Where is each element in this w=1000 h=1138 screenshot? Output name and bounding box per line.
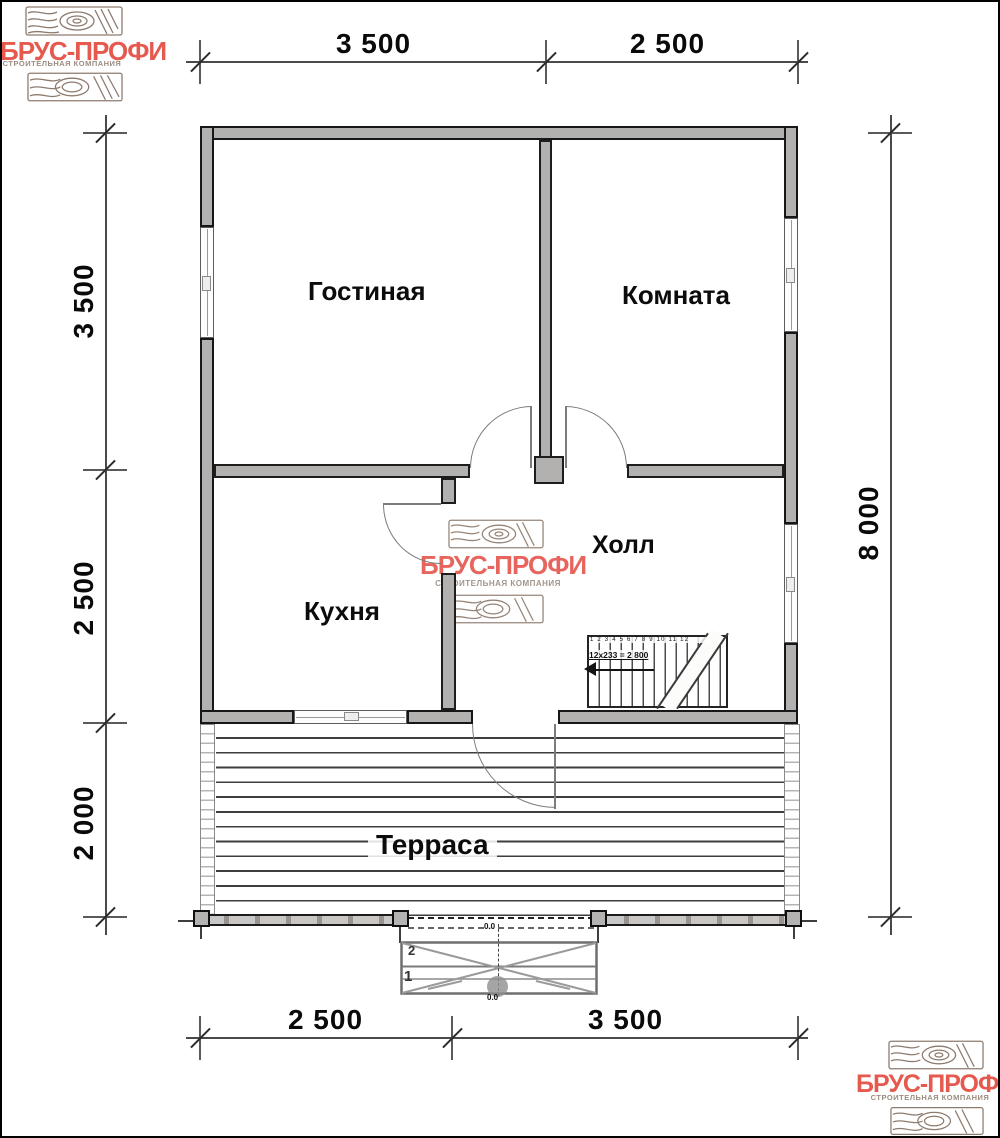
floor-plan-sheet: БРУС-ПРОФИ СТРОИТЕЛЬНАЯ КОМПАНИЯ БРУС-ПР…: [0, 0, 1000, 1138]
wood-plank-icon: [888, 1040, 984, 1070]
dim-left-2500: 2 500: [68, 510, 100, 686]
dim-bottom-3500: 3 500: [538, 1004, 713, 1036]
dim-left-3500: 3 500: [68, 213, 100, 389]
door-leaf-living-room: [530, 406, 532, 468]
terrace-opening-dashed-line: [408, 917, 594, 919]
staircase-step-numbers: 1 2 3 4 5 6 7 8 9 10 11 12: [590, 637, 710, 643]
terrace-left-edge: [200, 724, 215, 916]
dim-left-2000: 2 000: [68, 735, 100, 911]
room-label-kitchen: Кухня: [304, 596, 380, 627]
terrace-right-edge: [784, 724, 800, 916]
terrace-post: [590, 910, 607, 927]
window-living-room: [200, 227, 214, 338]
room-label-hall: Холл: [592, 531, 655, 560]
railing-tick: [200, 927, 202, 939]
wall-exterior-left-lower: [200, 338, 214, 724]
dimension-line-left: [105, 115, 107, 935]
room-label-bedroom: Комната: [622, 280, 730, 311]
wood-plank-icon: [27, 72, 123, 102]
wood-plank-icon: [448, 593, 544, 625]
wall-interior-kitchen: [441, 573, 456, 710]
wood-plank-icon: [25, 6, 123, 36]
window-bedroom: [784, 218, 798, 332]
staircase-direction-line: [596, 669, 654, 671]
wall-exterior-top: [200, 126, 798, 140]
dim-bottom-2500: 2 500: [238, 1004, 413, 1036]
wall-exterior-right-upper: [784, 126, 798, 218]
dim-right-8000: 8 000: [853, 435, 885, 611]
brand-tagline-footer: СТРОИТЕЛЬНАЯ КОМПАНИЯ: [866, 1093, 994, 1102]
room-label-living: Гостиная: [308, 276, 426, 307]
door-leaf-terrace: [554, 724, 556, 809]
wall-interior-living-bedroom: [539, 140, 552, 458]
dim-top-3500: 3 500: [286, 28, 461, 60]
window-hall: [784, 524, 798, 643]
wall-exterior-bottom-a: [200, 710, 294, 724]
terrace-railing-left: [196, 914, 404, 926]
railing-tick: [793, 927, 795, 939]
wall-interior-center-stub: [534, 456, 564, 484]
railing-tick: [178, 920, 193, 922]
entrance-level-bottom: 0.0: [487, 993, 498, 1002]
wall-interior-horizontal-left: [214, 464, 470, 478]
wall-interior-kitchen-stub: [441, 478, 456, 504]
wood-plank-icon: [890, 1106, 984, 1136]
door-arc-living-room: [470, 406, 532, 468]
terrace-opening-dashed-line: [408, 927, 594, 929]
wall-exterior-bottom-b: [407, 710, 473, 724]
wall-exterior-bottom-c: [558, 710, 798, 724]
staircase-formula: 12x233 = 2 800: [589, 650, 648, 660]
brand-tagline: СТРОИТЕЛЬНАЯ КОМПАНИЯ: [0, 59, 124, 68]
door-arc-bedroom: [565, 406, 627, 468]
window-kitchen: [294, 710, 407, 724]
staircase-arrow-icon: [584, 662, 596, 676]
railing-tick: [802, 920, 817, 922]
wood-plank-icon: [448, 518, 544, 550]
terrace-post: [392, 910, 409, 927]
entrance-step-label-1: 1: [404, 968, 412, 985]
door-leaf-kitchen: [383, 503, 441, 505]
dimension-line-right: [890, 115, 892, 935]
dimension-line-top: [186, 61, 808, 63]
door-leaf-bedroom: [565, 406, 567, 468]
wall-interior-horizontal-right: [627, 464, 784, 478]
room-label-terrace: Терраса: [368, 828, 497, 862]
dimension-line-bottom: [186, 1037, 808, 1039]
terrace-post: [785, 910, 802, 927]
door-arc-kitchen: [383, 504, 441, 564]
wall-exterior-right-mid: [784, 332, 798, 524]
terrace-post: [193, 910, 210, 927]
terrace-railing-right: [596, 914, 802, 926]
entrance-step-label-2: 2: [408, 943, 415, 958]
wall-exterior-left-upper: [200, 126, 214, 227]
dim-top-2500: 2 500: [580, 28, 755, 60]
entrance-level-top: 0.0: [484, 922, 495, 931]
